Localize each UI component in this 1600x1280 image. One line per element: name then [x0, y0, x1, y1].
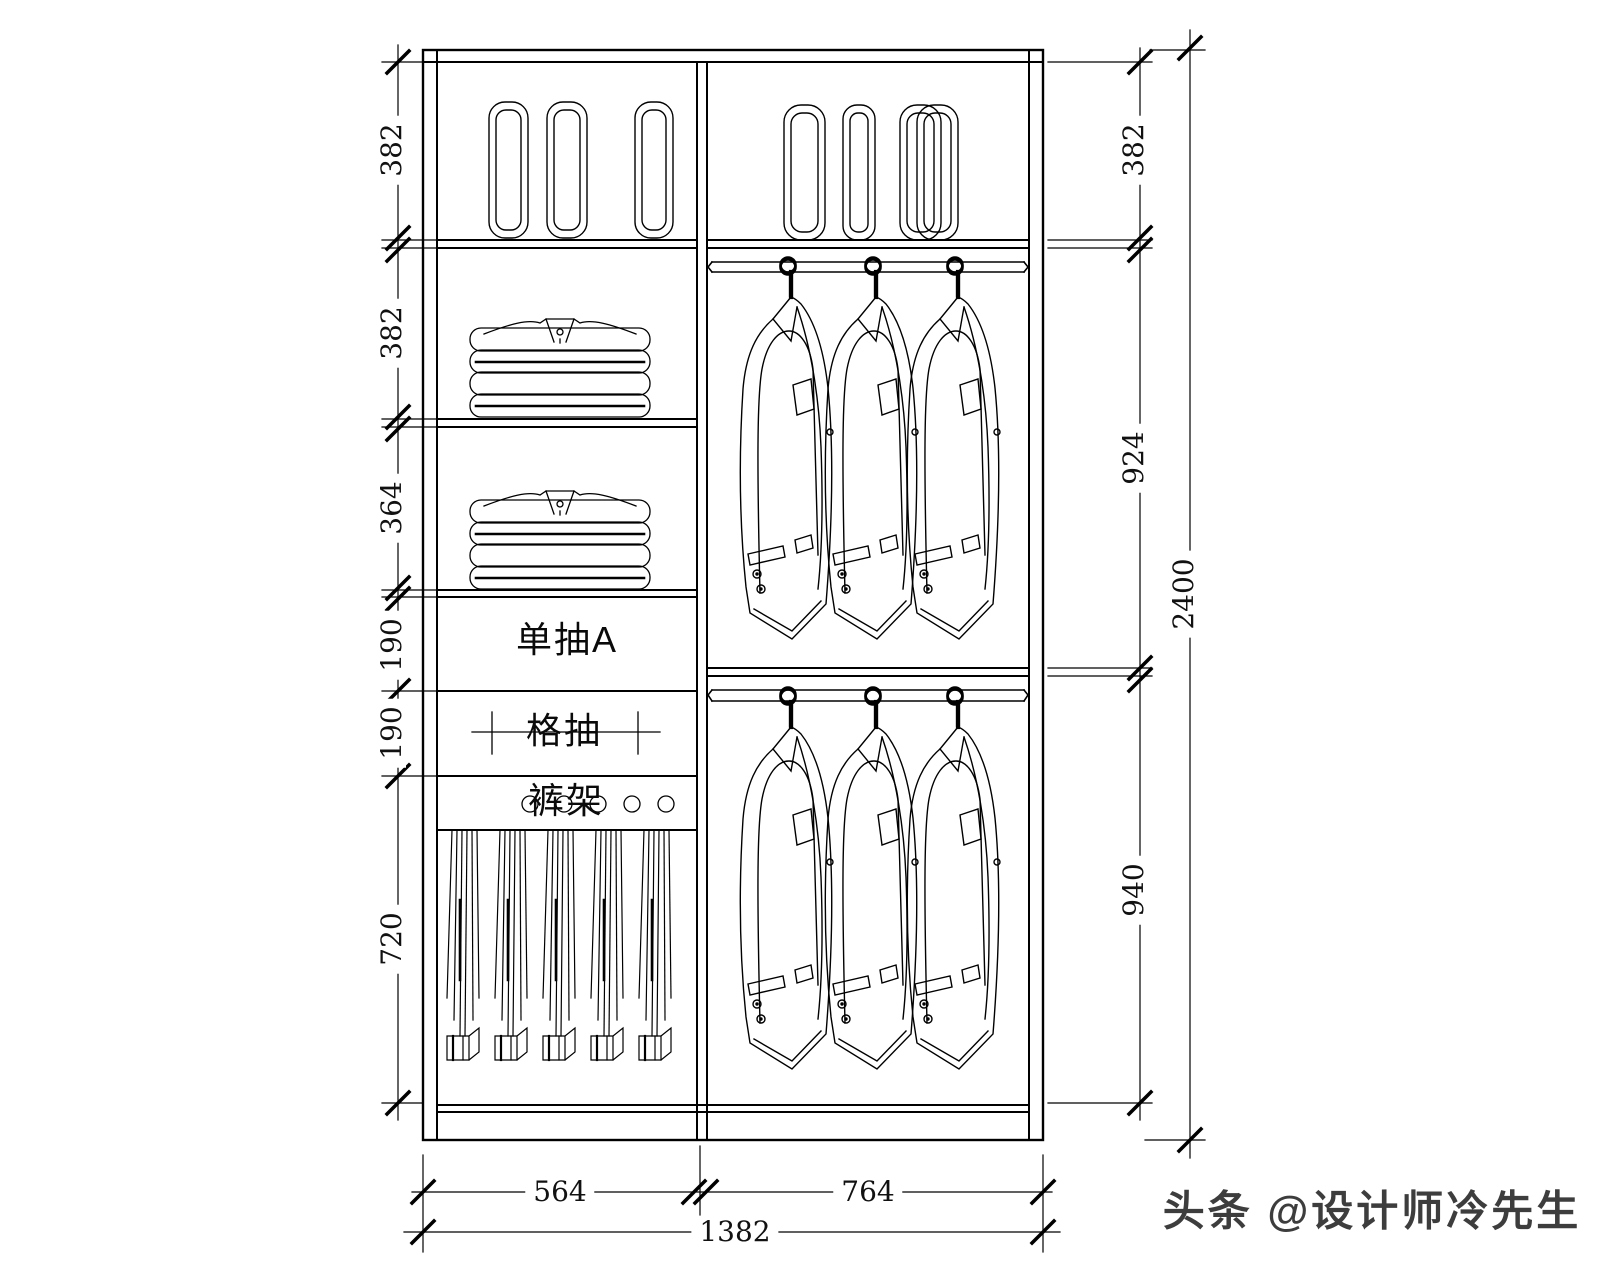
folded-shirt-icon [470, 491, 650, 589]
dim-label-right-924: 924 [1120, 423, 1148, 492]
pants-icon [447, 830, 479, 1060]
dim-label-left-720: 720 [378, 904, 406, 973]
pants-icon [591, 830, 623, 1060]
dim-label-left-382a: 382 [378, 115, 406, 184]
dim-label-bottom-564: 564 [525, 1178, 594, 1206]
storage-box-icon [489, 102, 528, 238]
storage-box-icon [635, 102, 673, 238]
jacket-icon [740, 690, 833, 1070]
pants-icon [543, 830, 575, 1060]
storage-box-icon [900, 105, 941, 240]
cad-wardrobe-drawing: 382 382 364 190 190 720 382 924 940 2400… [0, 0, 1600, 1280]
storage-box-icon [917, 105, 958, 240]
pants-icon [639, 830, 671, 1060]
right-shelves [707, 240, 1029, 676]
dim-label-left-190b: 190 [378, 698, 406, 767]
jacket-icon [907, 690, 1000, 1070]
hanging-pants-row [447, 830, 671, 1060]
dim-label-overall-height: 2400 [1170, 550, 1198, 637]
drawer-label-pants-rack: 裤架 [528, 783, 604, 819]
storage-box-icon [784, 105, 825, 240]
jacket-icon [907, 260, 1000, 640]
dimension-lines [382, 30, 1205, 1252]
dim-label-left-382b: 382 [378, 298, 406, 367]
storage-boxes-right [784, 105, 958, 240]
dim-label-right-940: 940 [1120, 855, 1148, 924]
dim-label-left-190a: 190 [378, 610, 406, 679]
jacket-icon [740, 260, 833, 640]
watermark-text: 头条 @设计师冷先生 [1163, 1178, 1582, 1239]
wardrobe-line-art [0, 0, 1600, 1280]
folded-shirt-icon [470, 319, 650, 417]
drawer-label-single: 单抽A [516, 622, 618, 658]
dim-label-right-382: 382 [1120, 115, 1148, 184]
pants-icon [495, 830, 527, 1060]
jacket-icon [825, 260, 918, 640]
storage-box-icon [843, 105, 875, 240]
dim-label-bottom-764: 764 [833, 1178, 902, 1206]
drawer-label-grid: 格抽 [526, 713, 602, 749]
storage-boxes-left [489, 102, 673, 238]
jacket-icon [825, 690, 918, 1070]
dim-label-left-364: 364 [378, 473, 406, 542]
storage-box-icon [547, 102, 587, 238]
dim-label-overall-width: 1382 [691, 1218, 778, 1246]
